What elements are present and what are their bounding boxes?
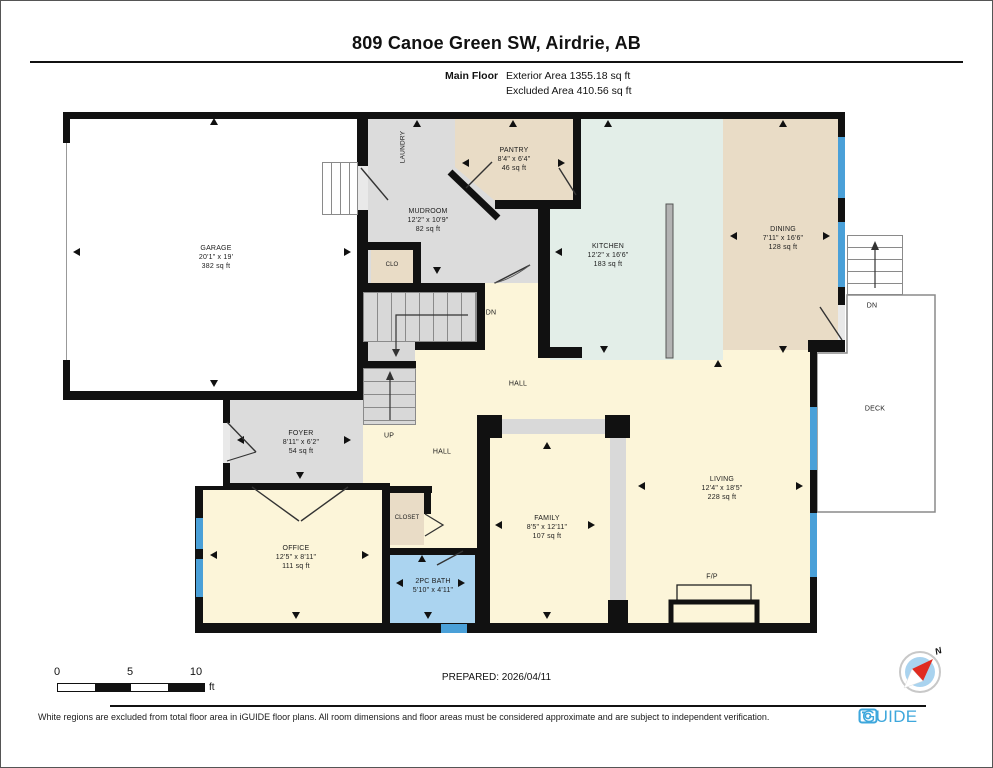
scale-tick-5: 5 bbox=[127, 666, 133, 678]
front-door-leaf bbox=[227, 422, 256, 452]
exterior-area-label: Exterior Area 1355.18 sq ft bbox=[506, 70, 630, 82]
room-label-closet: CLOSET bbox=[395, 515, 420, 523]
deck-stairs-dn-label: DN bbox=[867, 301, 878, 310]
footer-disclaimer: White regions are excluded from total fl… bbox=[38, 712, 769, 722]
floorplan-page: 809 Canoe Green SW, Airdrie, AB Main Flo… bbox=[0, 0, 993, 768]
room-label-office: OFFICE12'5" x 8'11"111 sq ft bbox=[276, 544, 316, 572]
room-label-kitchen: KITCHEN12'2" x 16'6"183 sq ft bbox=[588, 242, 629, 270]
scale-bar bbox=[57, 683, 205, 692]
kitchen-island bbox=[666, 204, 673, 358]
stairs-up-label: UP bbox=[384, 431, 394, 440]
office-door-leaf-right bbox=[301, 487, 348, 521]
scale-tick-10: 10 bbox=[190, 666, 202, 678]
room-label-hall-upper: HALL bbox=[509, 379, 527, 388]
room-label-bath: 2PC BATH5'10" x 4'11" bbox=[413, 577, 453, 595]
fireplace-box bbox=[671, 602, 757, 625]
floor-label: Main Floor bbox=[445, 70, 498, 82]
room-label-living: LIVING12'4" x 18'5"228 sq ft bbox=[702, 475, 743, 503]
room-label-pantry: PANTRY8'4" x 6'4"46 sq ft bbox=[498, 146, 531, 174]
iguide-icon bbox=[858, 707, 878, 725]
scale-tick-0: 0 bbox=[54, 666, 60, 678]
room-label-foyer: FOYER8'11" x 6'2"54 sq ft bbox=[283, 429, 319, 457]
detail-layer bbox=[0, 0, 993, 768]
deck-label: DECK bbox=[865, 404, 885, 413]
pantry-door-leaf bbox=[466, 162, 492, 188]
front-door-chord bbox=[227, 452, 256, 461]
deck-stairs-arrowhead bbox=[871, 241, 879, 250]
scale-unit: ft bbox=[209, 682, 215, 693]
fireplace-label: F/P bbox=[706, 572, 718, 581]
excluded-area-label: Excluded Area 410.56 sq ft bbox=[506, 85, 632, 97]
pantry-diagonal-wall bbox=[450, 172, 498, 218]
brand-logo: iGUIDE bbox=[858, 707, 917, 727]
room-label-family: FAMILY8'5" x 12'11"107 sq ft bbox=[527, 514, 567, 542]
stairs-down-arrow bbox=[396, 315, 468, 349]
room-label-dining: DINING7'11" x 16'6"128 sq ft bbox=[763, 225, 803, 253]
room-label-mudroom: MUDROOM12'2" x 10'9"82 sq ft bbox=[408, 207, 449, 235]
stairs-up-arrowhead bbox=[386, 371, 394, 380]
room-label-clo: CLO bbox=[386, 262, 399, 270]
pantry-side-door-leaf bbox=[559, 168, 576, 195]
stairs-down-arrowhead bbox=[392, 349, 400, 357]
deck-door-leaf bbox=[820, 307, 842, 340]
garage-entry-door-leaf bbox=[361, 168, 388, 200]
page-title: 809 Canoe Green SW, Airdrie, AB bbox=[0, 33, 993, 54]
title-rule bbox=[30, 61, 963, 63]
mudroom-door-leaf bbox=[495, 265, 530, 283]
stairs-dn-label: DN bbox=[486, 308, 497, 317]
closet-bifold-door bbox=[425, 514, 443, 536]
prepared-date: PREPARED: 2026/04/11 bbox=[0, 672, 993, 683]
footer-rule bbox=[110, 705, 926, 707]
room-label-laundry: LAUNDRY bbox=[400, 131, 409, 163]
bath-door-leaf bbox=[437, 551, 463, 565]
room-label-garage: GARAGE20'1" x 19'382 sq ft bbox=[199, 244, 233, 272]
room-label-hall-lower: HALL bbox=[433, 447, 451, 456]
office-door-leaf-left bbox=[252, 487, 299, 521]
